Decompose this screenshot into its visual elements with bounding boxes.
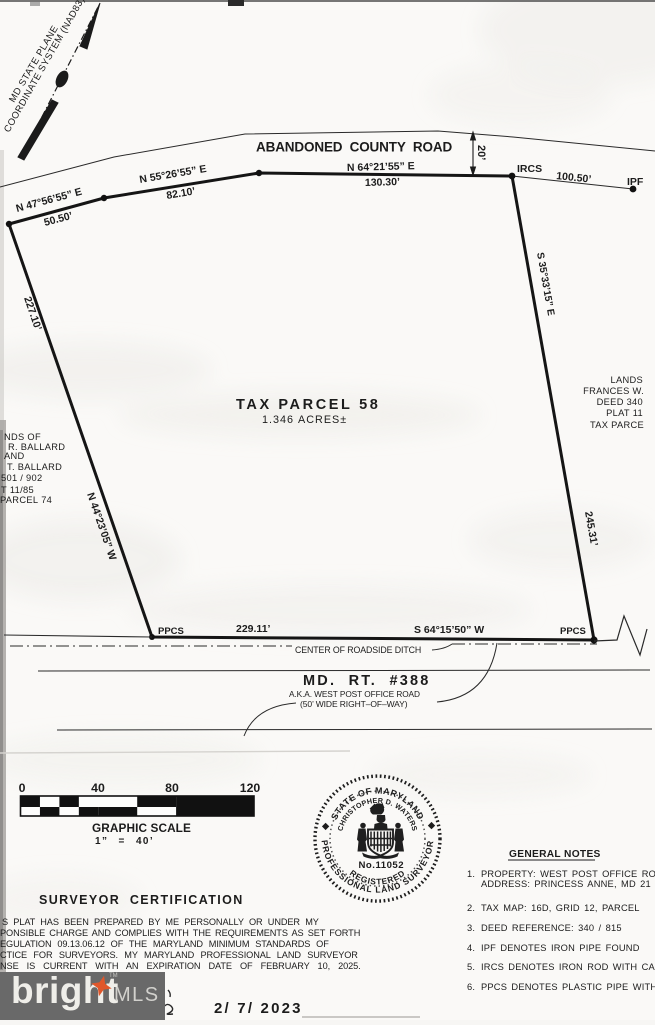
svg-text:130.30’: 130.30’ — [365, 176, 400, 189]
svg-text:TAX PARCE: TAX PARCE — [590, 420, 644, 430]
svg-text:(50’ WIDE RIGHT–OF–WAY): (50’ WIDE RIGHT–OF–WAY) — [300, 699, 408, 709]
svg-text:40: 40 — [91, 781, 105, 795]
svg-text:MLS: MLS — [114, 984, 160, 1006]
svg-text:PLAT 11: PLAT 11 — [606, 408, 643, 418]
svg-text:1” = 40’: 1” = 40’ — [95, 836, 154, 847]
svg-text:PONSIBLE CHARGE AND COMPLIES W: PONSIBLE CHARGE AND COMPLIES WITH THE RE… — [0, 928, 360, 938]
svg-text:DEED 340: DEED 340 — [597, 397, 643, 407]
svg-text:NDS OF: NDS OF — [4, 432, 41, 442]
svg-text:0: 0 — [19, 781, 26, 795]
svg-text:PPCS DENOTES PLASTIC PIPE WITH: PPCS DENOTES PLASTIC PIPE WITH — [481, 982, 655, 992]
svg-text:120: 120 — [240, 781, 261, 795]
svg-text:S PLAT HAS BEEN PREPARED BY ME: S PLAT HAS BEEN PREPARED BY ME PERSONALL… — [2, 917, 319, 927]
svg-text:GRAPHIC SCALE: GRAPHIC SCALE — [92, 821, 191, 835]
svg-text:2/ 7/ 2023: 2/ 7/ 2023 — [214, 1000, 303, 1017]
svg-text:S 64°15’50” W: S 64°15’50” W — [414, 624, 484, 636]
svg-text:PPCS: PPCS — [560, 626, 586, 637]
svg-text:6.: 6. — [467, 982, 475, 992]
svg-text:1.346 ACRES±: 1.346 ACRES± — [262, 414, 347, 426]
svg-text:501 / 902: 501 / 902 — [1, 473, 42, 483]
svg-text:T. BALLARD: T. BALLARD — [7, 462, 62, 472]
svg-text:SURVEYOR CERTIFICATION: SURVEYOR CERTIFICATION — [39, 893, 244, 907]
svg-text:EGULATION 09.13.06.12 OF THE M: EGULATION 09.13.06.12 OF THE MARYLAND MI… — [0, 939, 329, 949]
svg-text:DEED REFERENCE: 340 / 815: DEED REFERENCE: 340 / 815 — [481, 923, 622, 933]
svg-text:FRANCES W.: FRANCES W. — [583, 386, 644, 396]
svg-text:5.: 5. — [467, 962, 475, 972]
svg-text:GENERAL NOTES: GENERAL NOTES — [509, 849, 601, 860]
svg-text:ABANDONED COUNTY ROAD: ABANDONED COUNTY ROAD — [256, 140, 452, 155]
svg-text:1.: 1. — [467, 869, 475, 879]
svg-text:N 64°21’55” E: N 64°21’55” E — [347, 160, 415, 174]
svg-text:IRCS: IRCS — [517, 163, 542, 175]
svg-text:PPCS: PPCS — [158, 626, 184, 637]
svg-text:IRCS DENOTES IRON ROD WITH CA: IRCS DENOTES IRON ROD WITH CA — [481, 962, 655, 972]
svg-text:A.K.A. WEST POST OFFICE ROAD: A.K.A. WEST POST OFFICE ROAD — [289, 689, 420, 699]
svg-text:2.: 2. — [467, 903, 475, 913]
svg-text:IPF DENOTES IRON PIPE FOUND: IPF DENOTES IRON PIPE FOUND — [481, 943, 640, 953]
svg-text:No.11052: No.11052 — [359, 860, 405, 871]
svg-text:PROPERTY: WEST POST OFFICE RO: PROPERTY: WEST POST OFFICE RO — [481, 869, 655, 879]
svg-text:CTICE FOR SURVEYORS. MY MARYLA: CTICE FOR SURVEYORS. MY MARYLAND PROFESS… — [0, 950, 358, 960]
svg-text:T 11/85: T 11/85 — [1, 485, 34, 495]
svg-text:20’: 20’ — [475, 145, 487, 160]
svg-text:229.11’: 229.11’ — [236, 623, 271, 635]
svg-text:TM: TM — [109, 973, 118, 979]
svg-text:IPF: IPF — [627, 176, 644, 188]
svg-text:4.: 4. — [467, 943, 475, 953]
svg-text:PARCEL 74: PARCEL 74 — [0, 495, 52, 505]
svg-text:3.: 3. — [467, 923, 475, 933]
svg-text:CENTER OF ROADSIDE DITCH: CENTER OF ROADSIDE DITCH — [295, 645, 421, 655]
svg-text:TAX MAP: 16D, GRID 12, PARCEL: TAX MAP: 16D, GRID 12, PARCEL — [481, 903, 640, 913]
svg-text:ADDRESS: PRINCESS ANNE, MD 21: ADDRESS: PRINCESS ANNE, MD 21 — [481, 879, 651, 889]
svg-text:80: 80 — [165, 781, 179, 795]
svg-text:AND: AND — [4, 451, 25, 461]
svg-text:TAX PARCEL 58: TAX PARCEL 58 — [236, 397, 380, 413]
svg-text:MD. RT. #388: MD. RT. #388 — [303, 673, 431, 689]
svg-text:LANDS: LANDS — [610, 375, 643, 385]
